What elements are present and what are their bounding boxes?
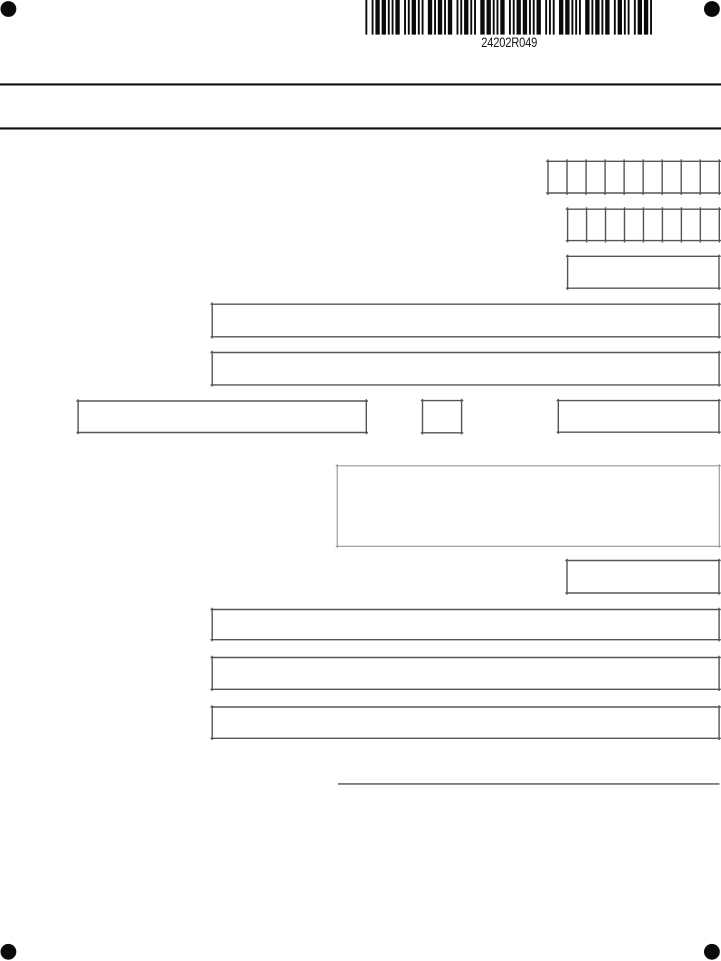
svg-text:24202R049: 24202R049 [481, 35, 537, 50]
